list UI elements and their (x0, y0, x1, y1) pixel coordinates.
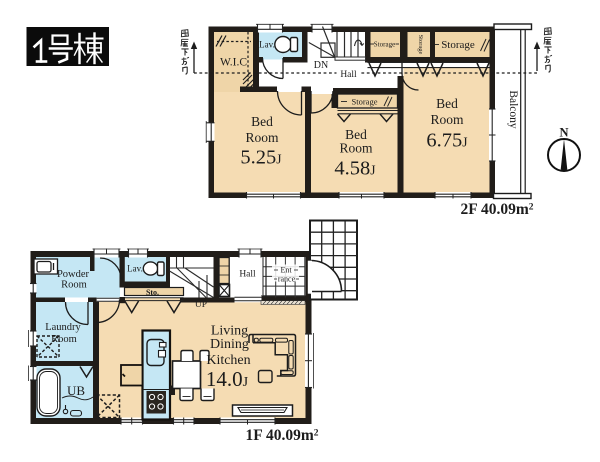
svg-text:Room: Room (61, 280, 87, 291)
svg-text:Bed: Bed (436, 96, 458, 111)
svg-text:Bed: Bed (251, 114, 273, 129)
svg-text:Room: Room (245, 130, 279, 145)
svg-text:2F 40.09m2: 2F 40.09m2 (460, 201, 533, 218)
svg-text:Room: Room (430, 112, 464, 127)
svg-text:Lav.: Lav. (127, 264, 143, 274)
svg-text:Balcony: Balcony (507, 90, 519, 129)
svg-text:Storage: Storage (441, 39, 475, 51)
svg-text:14.0J: 14.0J (206, 367, 249, 391)
svg-text:1F 40.09m2: 1F 40.09m2 (245, 427, 318, 444)
svg-text:DN: DN (314, 60, 328, 71)
svg-text:Hall: Hall (340, 70, 357, 80)
svg-text:UP: UP (195, 300, 207, 310)
svg-text:Storage: Storage (374, 41, 395, 49)
svg-text:Kitchen: Kitchen (206, 353, 250, 368)
svg-text:Room: Room (339, 141, 373, 156)
svg-text:UB: UB (67, 383, 85, 398)
svg-text:5.25J: 5.25J (240, 147, 281, 169)
svg-text:Ent: Ent (280, 266, 292, 275)
svg-text:N: N (559, 126, 568, 140)
svg-text:rance: rance (278, 275, 296, 284)
svg-text:Lav.: Lav. (259, 40, 275, 50)
svg-text:Powder: Powder (57, 269, 90, 280)
svg-text:Dining: Dining (210, 337, 249, 352)
svg-text:Hall: Hall (239, 270, 256, 280)
svg-text:Sto.: Sto. (146, 288, 159, 297)
svg-text:Room: Room (51, 334, 77, 345)
svg-text:Storage: Storage (417, 35, 424, 55)
svg-text:W.I.C: W.I.C (220, 57, 247, 69)
svg-text:Storage: Storage (352, 97, 378, 107)
svg-text:Laundry: Laundry (45, 322, 81, 333)
svg-text:4.58J: 4.58J (334, 158, 375, 180)
svg-text:6.75J: 6.75J (426, 130, 467, 152)
